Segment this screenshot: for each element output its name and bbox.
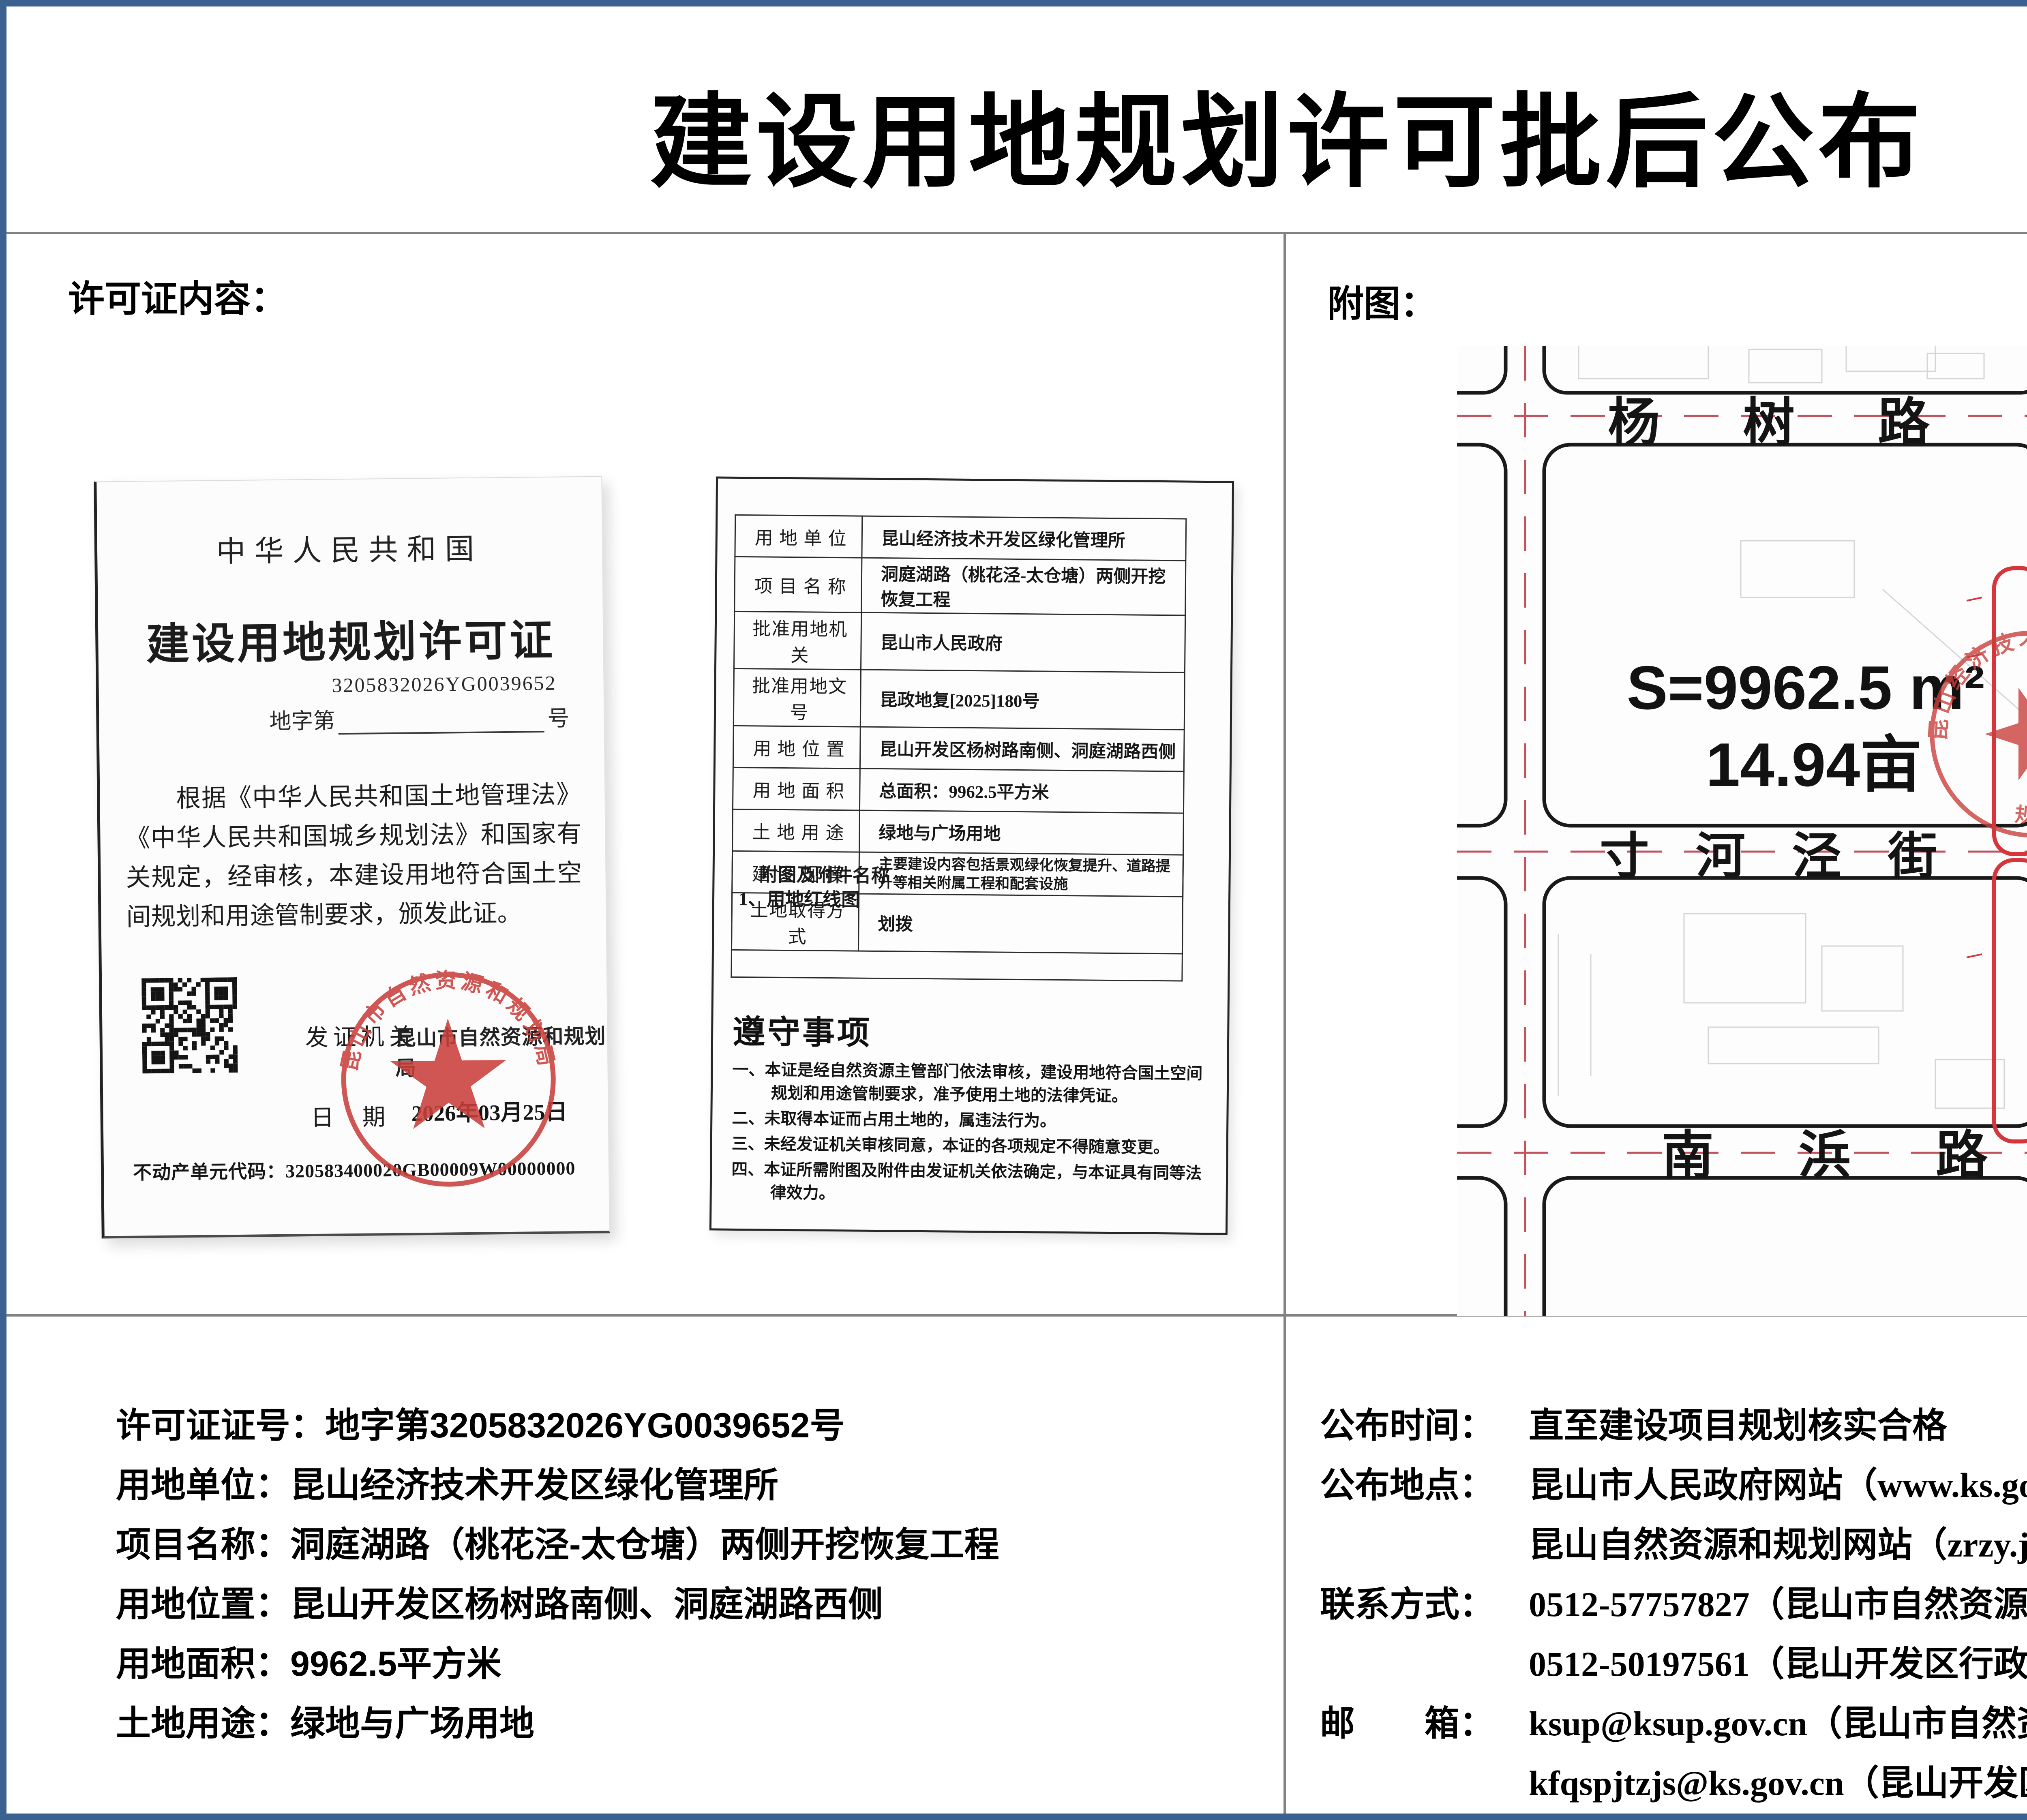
row-value: 绿地与广场用地 <box>859 810 1184 855</box>
summary-value: 绿地与广场用地 <box>290 1704 534 1743</box>
row-label: 批准用地机关 <box>734 611 861 670</box>
publication-label: 公布地点： <box>1320 1456 1529 1515</box>
serial-suffix: 号 <box>547 700 570 732</box>
serial-blank-line <box>338 707 544 734</box>
summary-line: 用地面积：9962.5平方米 <box>116 1634 999 1694</box>
building-outlines <box>1558 346 2027 1108</box>
publication-label: 联系方式： <box>1320 1575 1529 1634</box>
summary-value: 9962.5平方米 <box>290 1644 501 1683</box>
table-row: 项 目 名 称洞庭湖路（桃花泾-太仓塘）两侧开挖恢复工程 <box>735 557 1186 615</box>
publication-line: 公布时间：直至建设项目规划核实合格 <box>1320 1396 2027 1456</box>
summary-line: 项目名称：洞庭湖路（桃花泾-太仓塘）两侧开挖恢复工程 <box>116 1515 999 1575</box>
row-value: 总面积：9962.5平方米 <box>859 769 1184 813</box>
summary-line: 土地用途：绿地与广场用地 <box>116 1694 999 1754</box>
summary-value: 地字第3205832026YG0039652号 <box>325 1406 844 1445</box>
notice-item: 四、本证所需附图及附件由发证机关依法确定，与本证具有同等法律效力。 <box>731 1158 1206 1208</box>
notice-item: 二、未取得本证而占用土地的，属违法行为。 <box>732 1107 1206 1134</box>
row-label: 土 地 用 途 <box>733 809 860 852</box>
publication-line: kfqspjtzjs@ks.gov.cn（昆山开发区行政审批局） <box>1320 1754 2027 1813</box>
summary-label: 许可证证号： <box>116 1406 325 1445</box>
summary-value: 昆山开发区杨树路南侧、洞庭湖路西侧 <box>290 1585 883 1624</box>
official-seal-icon: 昆山市自然资源和规划局 <box>329 959 568 1199</box>
cert-country: 中华人民共和国 <box>97 523 602 571</box>
summary-line: 许可证证号：地字第3205832026YG0039652号 <box>116 1396 999 1456</box>
table-row: 用 地 面 积总面积：9962.5平方米 <box>733 767 1184 813</box>
road-label-north: 杨树路 <box>1608 394 2013 452</box>
permit-detail-sheet: 用 地 单 位昆山经济技术开发区绿化管理所 项 目 名 称洞庭湖路（桃花泾-太仓… <box>709 476 1234 1235</box>
publication-line: 公布地点：昆山市人民政府网站（www.ks.gov.cn） <box>1320 1456 2027 1515</box>
map-seal-text-bottom: 规划建设 <box>2008 777 2027 837</box>
summary-label: 土地用途： <box>116 1704 290 1743</box>
row-value: 昆山市人民政府 <box>861 612 1185 672</box>
publication-value: ksup@ksup.gov.cn（昆山市自然资源和规划局） <box>1529 1704 2027 1743</box>
estate-code-label: 不动产单元代码： <box>133 1161 286 1183</box>
summary-line: 用地单位：昆山经济技术开发区绿化管理所 <box>116 1456 999 1515</box>
summary-label: 项目名称： <box>116 1525 290 1564</box>
row-label: 用 地 单 位 <box>735 515 862 558</box>
table-row: 批准用地文号昆政地复[2025]180号 <box>733 668 1185 730</box>
cert-serial-line: 地字第 号 <box>269 700 570 735</box>
publication-line: 联系方式：0512-57757827（昆山市自然资源和规划局） <box>1320 1575 2027 1634</box>
attachment-label: 附图及附件名称 <box>759 860 890 888</box>
parcel-area-mu: 14.94亩 <box>1706 730 1922 799</box>
row-value: 昆山开发区杨树路南侧、洞庭湖路西侧 <box>860 727 1184 771</box>
summary-line: 用地位置：昆山开发区杨树路南侧、洞庭湖路西侧 <box>116 1575 999 1634</box>
publication-label: 公布时间： <box>1320 1396 1529 1456</box>
summary-label: 用地单位： <box>116 1466 290 1505</box>
summary-value: 洞庭湖路（桃花泾-太仓塘）两侧开挖恢复工程 <box>290 1525 999 1564</box>
summary-value: 昆山经济技术开发区绿化管理所 <box>290 1466 778 1505</box>
notice-item: 三、未经发证机关审核同意，本证的各项规定不得随意变更。 <box>732 1133 1206 1160</box>
attachment-item: 1、用地红线图 <box>739 884 860 912</box>
publication-line: 0512-50197561（昆山开发区行政审批局） <box>1320 1634 2027 1694</box>
page-title: 建设用地规划许可批后公布 <box>6 59 2027 207</box>
announcement-page: 建设用地规划许可批后公布 昆开审布〔2026〕23号 许可证内容： 附图： 中华… <box>0 0 2027 1820</box>
cert-serial-number: 3205832026YG0039652 <box>332 671 557 697</box>
attached-map-heading: 附图： <box>1327 274 1437 327</box>
cert-title: 建设用地规划许可证 <box>98 604 604 672</box>
summary-label: 用地位置： <box>116 1585 290 1624</box>
road-label-middle: 寸河泾街 <box>1600 829 1984 884</box>
publication-value: 直至建设项目规划核实合格 <box>1529 1406 1947 1445</box>
notice-item: 一、本证是经自然资源主管部门依法审核，建设用地符合国土空间规划和用途管制要求，准… <box>732 1058 1207 1109</box>
column-divider <box>1283 234 1286 1814</box>
row-label: 项 目 名 称 <box>735 557 862 612</box>
summary-label: 用地面积： <box>116 1644 290 1683</box>
publication-value: 昆山自然资源和规划网站（zrzy.jiangsu.gov.cn/szks） <box>1529 1525 2027 1564</box>
parcel-area-sqm: S=9962.5 m² <box>1626 653 1984 722</box>
road-label-south: 南浜路 <box>1662 1126 2027 1184</box>
row-value: 昆山经济技术开发区绿化管理所 <box>862 516 1186 561</box>
notice-title: 遵守事项 <box>733 1006 872 1054</box>
table-row: 土 地 用 途绿地与广场用地 <box>733 809 1184 855</box>
permit-content-heading: 许可证内容： <box>68 269 287 322</box>
cert-body-text: 根据《中华人民共和国土地管理法》《中华人民共和国城乡规划法》和国家有关规定，经审… <box>125 775 583 937</box>
row-label: 用 地 面 积 <box>733 767 860 810</box>
publication-value: 0512-57757827（昆山市自然资源和规划局） <box>1529 1585 2027 1624</box>
publication-info-block: 公布时间：直至建设项目规划核实合格 公布地点：昆山市人民政府网站（www.ks.… <box>1320 1396 2027 1813</box>
svg-text:规划建设: 规划建设 <box>2008 777 2027 837</box>
permit-summary-block: 许可证证号：地字第3205832026YG0039652号 用地单位：昆山经济技… <box>116 1396 999 1754</box>
header-divider <box>6 232 2027 234</box>
row-label: 用 地 位 置 <box>733 726 860 769</box>
row-value: 昆政地复[2025]180号 <box>860 670 1185 730</box>
seal-star-icon <box>390 1018 507 1129</box>
table-row: 批准用地机关昆山市人民政府 <box>734 611 1185 672</box>
map-canvas: 杨树路 寸河泾街 南浜路 洞庭湖路 S=9962.5 m² 14.94亩 昆山经… <box>1457 346 2027 1316</box>
table-row: 用 地 单 位昆山经济技术开发区绿化管理所 <box>735 515 1186 561</box>
notice-list: 一、本证是经自然资源主管部门依法审核，建设用地符合国土空间规划和用途管制要求，准… <box>731 1058 1206 1211</box>
publication-line: 昆山自然资源和规划网站（zrzy.jiangsu.gov.cn/szks） <box>1320 1515 2027 1575</box>
row-value: 洞庭湖路（桃花泾-太仓塘）两侧开挖恢复工程 <box>861 558 1186 615</box>
publication-value: kfqspjtzjs@ks.gov.cn（昆山开发区行政审批局） <box>1529 1764 2027 1803</box>
qr-code <box>141 977 238 1073</box>
serial-prefix: 地字第 <box>269 702 335 735</box>
planning-permit-certificate: 中华人民共和国 建设用地规划许可证 3205832026YG0039652 地字… <box>94 476 610 1238</box>
red-line-map: 杨树路 寸河泾街 南浜路 洞庭湖路 S=9962.5 m² 14.94亩 昆山经… <box>1457 346 2027 1316</box>
publication-value: 0512-50197561（昆山开发区行政审批局） <box>1529 1644 2027 1683</box>
publication-line: 邮 箱：ksup@ksup.gov.cn（昆山市自然资源和规划局） <box>1320 1694 2027 1754</box>
publication-label: 邮 箱： <box>1320 1694 1529 1754</box>
row-label: 批准用地文号 <box>733 668 861 727</box>
publication-value: 昆山市人民政府网站（www.ks.gov.cn） <box>1529 1466 2027 1505</box>
table-row: 用 地 位 置昆山开发区杨树路南侧、洞庭湖路西侧 <box>733 726 1184 771</box>
